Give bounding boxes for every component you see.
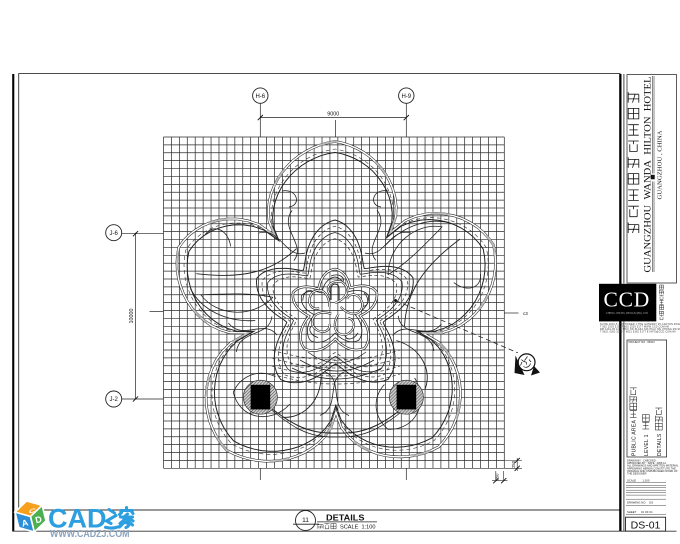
svg-text:PUBLIC AREA: PUBLIC AREA	[632, 420, 638, 456]
svg-text:10000: 10000	[129, 309, 135, 324]
svg-text:250: 250	[495, 473, 500, 481]
svg-text:DRAWING NO. DS: DRAWING NO. DS	[627, 501, 653, 505]
svg-text:GUANGZHOU , CHINA: GUANGZHOU , CHINA	[658, 130, 664, 200]
svg-text:250: 250	[511, 460, 516, 468]
svg-text:SCALE 1:100: SCALE 1:100	[340, 525, 375, 531]
svg-text:GUANGZHOU WANDA HILTON HOTE: GUANGZHOU WANDA HILTON HOTEL	[643, 76, 653, 272]
svg-text:DETAILS: DETAILS	[326, 512, 365, 522]
svg-text:CCD: CCD	[603, 288, 650, 312]
svg-text:SCALE 1:100: SCALE 1:100	[627, 479, 650, 483]
svg-text:T 8621 5382 5199 F 8621 5382 5: T 8621 5382 5199 F 8621 5382 5177 E INFO…	[600, 330, 676, 333]
svg-text:DETAILS: DETAILS	[657, 433, 663, 456]
svg-text:H-6: H-6	[255, 94, 265, 100]
svg-text:J-6: J-6	[110, 231, 119, 237]
svg-text:LEVEL 1: LEVEL 1	[644, 434, 650, 456]
svg-text:H-9: H-9	[401, 94, 411, 100]
svg-text:9000: 9000	[327, 112, 339, 118]
svg-text:PROJECT NO : 05024: PROJECT NO : 05024	[629, 340, 656, 344]
svg-text:c3: c3	[523, 311, 528, 316]
svg-text:SHEET 01 OF 01: SHEET 01 OF 01	[627, 510, 653, 514]
svg-text:11: 11	[302, 517, 309, 524]
svg-text:THE DESIGNER: THE DESIGNER	[627, 472, 647, 476]
svg-text:DS-01: DS-01	[631, 519, 661, 531]
svg-text:J-2: J-2	[110, 397, 119, 403]
svg-text:WWW.CADZJ.COM: WWW.CADZJ.COM	[50, 528, 130, 540]
svg-text:CHENG CHUNG DESIGN (HK) LTD: CHENG CHUNG DESIGN (HK) LTD	[606, 311, 649, 315]
